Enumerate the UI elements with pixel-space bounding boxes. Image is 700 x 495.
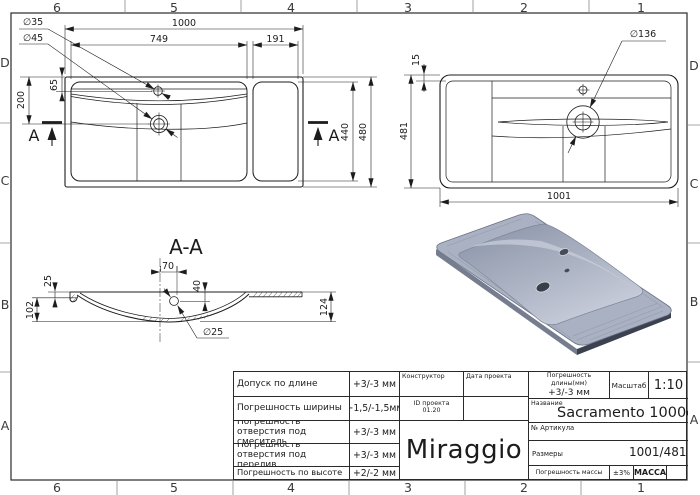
front-dimension-lines <box>29 29 371 187</box>
top-leaders <box>568 41 666 153</box>
dim-top-width: 1001 <box>547 191 571 202</box>
tolerance-value-text: +2/-2 мм <box>353 468 396 479</box>
zone-right-d: D <box>689 58 699 73</box>
dim-top-rim: 15 <box>411 54 422 66</box>
dim-front-height-inner: 440 <box>340 123 351 141</box>
size-cell: Размеры 1001/481 <box>528 440 688 465</box>
mass-tolerance-value-cell: ±3% <box>609 465 633 479</box>
scale-label-cell: Масштаб <box>609 372 648 398</box>
dim-recess-diameter: ∅136 <box>630 29 656 40</box>
front-extension-lines <box>20 25 377 187</box>
section-view: A-A <box>25 235 336 344</box>
dim-drain-offset: 200 <box>16 91 27 109</box>
tolerance-value-text: +1,5/-1,5мм <box>349 403 399 414</box>
tolerance-row-value: +1,5/-1,5мм <box>349 396 399 420</box>
logo-cell: Miraggio <box>399 420 528 479</box>
tolerance-row-value: +3/-3 мм <box>349 420 399 443</box>
project-date-cell: Дата проекта <box>463 372 528 396</box>
brand-logo: Miraggio <box>406 435 522 465</box>
tolerance-row-label: Погрешность ширины <box>234 396 349 420</box>
zone-bottom-3: 3 <box>404 480 412 495</box>
zone-bottom-1: 1 <box>637 480 645 495</box>
tolerance-row-label: Допуск по длине <box>234 372 349 396</box>
zone-top-2: 2 <box>520 0 528 15</box>
dim-drain-diameter: ∅45 <box>23 33 43 44</box>
mass-label: МАССА <box>634 468 666 477</box>
zone-left-d: D <box>0 55 10 70</box>
dim-section-drain-offset: 70 <box>162 261 174 272</box>
scale-value-cell: 1:10 <box>648 372 688 398</box>
top-dimension-lines <box>411 64 678 202</box>
zone-bottom-2: 2 <box>520 480 528 495</box>
dim-section-drain-depth: 40 <box>192 280 203 292</box>
mass-tolerance-label-cell: Погрешность массы <box>528 465 609 479</box>
article-cell: № Артикула <box>528 422 688 440</box>
dim-front-height-total: 480 <box>358 123 369 141</box>
mass-cell: МАССА <box>633 465 666 479</box>
top-view: ∅136 15 481 1001 <box>399 29 678 207</box>
name-cell: Название Sacramento 1000c <box>528 398 688 422</box>
article-label: № Артикула <box>531 424 574 432</box>
size-value: 1001/481 <box>629 445 687 459</box>
zone-left-a: A <box>1 418 10 433</box>
technical-drawing-page: { "frame": { "top_labels": ["6","5","4",… <box>0 0 700 495</box>
zone-left-b: B <box>1 297 10 312</box>
product-name: Sacramento 1000c <box>557 405 688 421</box>
section-cut-marks <box>42 123 328 147</box>
scale-label: Масштаб <box>612 381 647 390</box>
designer-cell: Конструктор <box>399 372 463 396</box>
zone-left-c: C <box>1 173 10 188</box>
empty-cell <box>666 465 688 479</box>
tolerance-row-label: Погрешность по высоте <box>234 466 349 479</box>
zone-right-c: C <box>690 176 699 191</box>
length-tolerance-cell: Погрешность длины(мм) +3/-3 мм <box>528 372 609 398</box>
zone-top-3: 3 <box>404 0 412 15</box>
tolerance-label-text: Погрешность ширины <box>237 403 342 413</box>
zone-bottom-5: 5 <box>170 480 178 495</box>
project-date-label: Дата проекта <box>466 373 511 381</box>
length-tolerance-value: +3/-3 мм <box>548 388 590 398</box>
tolerance-label-text: Погрешность отверстия под перелив <box>237 443 346 466</box>
zone-bottom-6: 6 <box>53 480 61 495</box>
section-letter-right: A <box>329 126 340 145</box>
dim-section-rim: 25 <box>43 275 54 287</box>
zone-bottom-4: 4 <box>287 480 295 495</box>
dim-section-total-height: 124 <box>319 298 330 316</box>
front-view: 1000 749 191 ∅35 ∅45 65 200 440 480 A A <box>16 17 377 187</box>
tolerance-value-text: +3/-3 мм <box>353 427 396 438</box>
mass-tolerance-label: Погрешность массы <box>536 469 603 476</box>
tolerance-label-text: Допуск по длине <box>237 379 318 389</box>
scale-value: 1:10 <box>654 378 683 393</box>
tolerance-value-text: +3/-3 мм <box>353 379 396 390</box>
tolerance-label-text: Погрешность по высоте <box>237 468 342 477</box>
tolerance-label-text: Погрешность отверстия под смеситель <box>237 420 346 443</box>
project-id-value: 01.20 <box>400 407 463 414</box>
mass-tolerance-value: ±3% <box>613 469 630 477</box>
zone-top-4: 4 <box>287 0 295 15</box>
tolerance-row-value: +3/-3 мм <box>349 443 399 466</box>
title-block: Допуск по длине +3/-3 мм Погрешность шир… <box>233 371 687 480</box>
dim-front-width-total: 1000 <box>172 18 196 29</box>
tolerance-value-text: +3/-3 мм <box>353 450 396 461</box>
designer-label: Конструктор <box>402 373 445 381</box>
project-id-cell: ID проекта 01.20 <box>399 396 463 420</box>
section-letter-left: A <box>29 126 40 145</box>
tolerance-row-label: Погрешность отверстия под перелив <box>234 443 349 466</box>
zone-top-1: 1 <box>637 0 645 15</box>
dim-section-bowl-depth: 102 <box>25 301 36 319</box>
dim-section-drain-diameter: ∅25 <box>203 327 223 338</box>
dim-front-width-basin: 749 <box>150 34 168 45</box>
length-tolerance-label: Погрешность длины(мм) <box>529 372 609 387</box>
dim-faucet-offset: 65 <box>49 79 60 91</box>
zone-top-6: 6 <box>53 0 61 15</box>
zone-top-5: 5 <box>170 0 178 15</box>
project-id-label: ID проекта <box>400 400 463 407</box>
dim-front-width-shelf: 191 <box>266 34 284 45</box>
dim-faucet-diameter: ∅35 <box>23 17 43 28</box>
render-3d-view <box>436 214 671 355</box>
size-label: Размеры <box>532 450 563 458</box>
tolerance-row-value: +3/-3 мм <box>349 372 399 396</box>
zone-right-b: B <box>690 294 699 309</box>
empty-cell <box>463 396 528 420</box>
tolerance-row-label: Погрешность отверстия под смеситель <box>234 420 349 443</box>
section-title: A-A <box>169 235 203 259</box>
zone-right-a: A <box>690 412 699 427</box>
dim-top-depth: 481 <box>399 122 410 140</box>
tolerance-row-value: +2/-2 мм <box>349 466 399 479</box>
